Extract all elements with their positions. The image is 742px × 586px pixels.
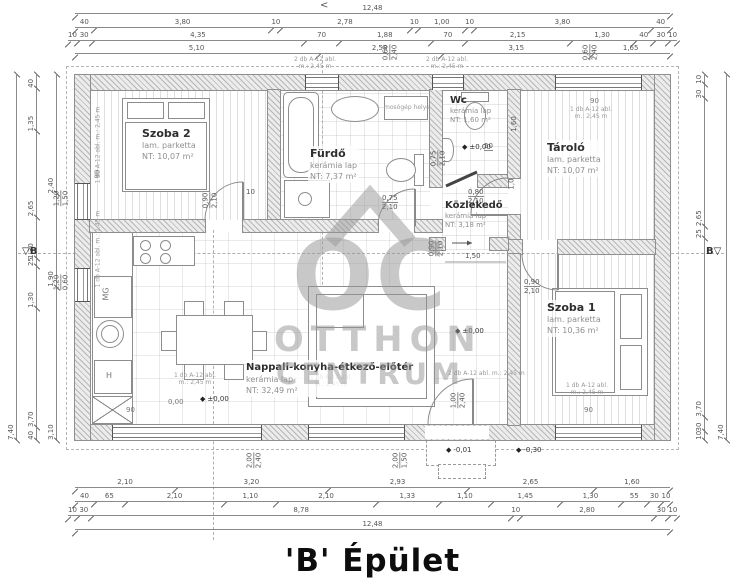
door-dim-furdo: 0,752,10	[382, 194, 398, 211]
window-dim-top-2: 0,602,40	[581, 45, 598, 61]
dim-right-chain: 10302,65253,703010	[692, 75, 704, 440]
dim-top-total: 12,48	[75, 2, 670, 14]
window-szoba1-bottom	[555, 425, 642, 440]
wall-exterior-right	[655, 75, 670, 440]
note-kitchen-window: 1 db A-12 abl. m.: 1,45 m	[95, 224, 102, 288]
wall-h1-a	[90, 220, 205, 232]
window-nappali-bottom-small	[308, 425, 405, 440]
room-label-tarolo: Tároló lam. parketta NT: 10,07 m²	[545, 140, 603, 177]
room-label-wc: Wc kerámia lap NT: 1,60 m²	[448, 93, 493, 126]
dim-right-total: 7,40	[714, 75, 726, 440]
washer-note: mosógép helye	[384, 104, 428, 111]
dim-leader-arrow: <	[320, 0, 328, 11]
window-dim-top-1: 0,602,40	[381, 45, 398, 61]
window-tarolo-top	[555, 75, 642, 90]
dim-kozlekedo-150: 1,50	[465, 252, 481, 260]
dim-bottom-row2: 40652,101,102,101,331,101,451,30553010	[75, 490, 670, 502]
wall-exterior-left	[75, 75, 90, 440]
window-nappali-bottom-large	[112, 425, 262, 440]
dim-szoba2-10: 10	[246, 188, 255, 196]
wall-nappali-szoba1	[508, 254, 520, 425]
floor-nappali-hall	[430, 250, 508, 425]
wall-h1-c	[415, 220, 442, 232]
level-marker-nappali-right: ±0,00	[455, 327, 484, 335]
room-label-nappali: Nappali-konyha-étkező-előtér kerámia lap…	[244, 360, 415, 397]
door-dim-szoba1: 0,902,10	[524, 278, 540, 295]
window-furdo-top	[305, 75, 339, 90]
stove	[133, 236, 195, 266]
level-zero-plain: 0,00	[168, 398, 184, 406]
wall-wc-bottom	[478, 175, 508, 187]
window-dim-bottom-small: 2,001,50	[391, 453, 408, 469]
burner	[160, 253, 171, 264]
dining-table	[176, 315, 253, 365]
dim-bottom-total: 12,48	[75, 518, 670, 530]
chair	[161, 331, 177, 351]
wall-furdo-wc	[430, 90, 442, 187]
washbasin	[331, 96, 379, 122]
door-dim-szoba2: 0,902,10	[201, 193, 218, 209]
door-dim-entry: 1,002,40	[449, 393, 466, 409]
dim-top-row3: 10304,35701,88702,151,30403010	[68, 29, 677, 41]
note-tarolo-window: 1 db A-12 abl.m.: 2,45 m	[556, 106, 626, 120]
room-label-szoba2: Szoba 2 lam. parketta NT: 10,07 m²	[140, 126, 198, 163]
burner	[140, 240, 151, 251]
kitchen-sink-inner	[101, 325, 119, 343]
wall-h4-b	[490, 238, 508, 250]
section-marker-right: B▽	[706, 246, 721, 257]
wall-szoba2-furdo	[268, 90, 280, 222]
wall-wc-tarolo	[508, 90, 520, 178]
level-marker-nappali-left: ±0,00	[200, 395, 229, 403]
shower-drain	[298, 192, 312, 206]
dim-top-row2: 403,80102,78101,00103,8040	[75, 16, 670, 28]
room-label-kozlekedo: Közlekedő kerámia lap NT: 3,18 m²	[443, 198, 505, 231]
dim-left-mid: 401,352,651,30251,303,7040	[24, 75, 36, 440]
window-dim-left-lower: 1,200,60	[52, 275, 69, 291]
dishwasher-label: MG	[103, 287, 111, 300]
wall-h3-b	[558, 240, 655, 254]
level-marker-entry: -0,01	[446, 446, 472, 454]
pillow	[620, 345, 642, 390]
burner	[160, 240, 171, 251]
pillow	[127, 102, 164, 119]
room-label-szoba1: Szoba 1 lam. parketta NT: 10,36 m²	[545, 300, 603, 337]
fridge-label: H	[106, 372, 112, 380]
chair	[251, 331, 267, 351]
note-entry-window: 2 db A-12 abl. m.: 2,45 m	[448, 370, 512, 377]
door-dim-kozlekedo: 0,902,10	[427, 241, 444, 257]
note-top-window-1: 2 db A-12 abl.m.: 2,45 m	[280, 56, 350, 70]
door-dim-wc: 0,752,10	[429, 151, 446, 167]
sill-szoba1: 90	[584, 406, 593, 414]
dim-left-total: 7,40	[4, 75, 16, 440]
wall-h1-b	[243, 220, 378, 232]
floorplan-canvas: mosógép helye MG H	[0, 0, 742, 586]
note-top-window-2: 2 db A-12 abl.m.: 2,45 m	[412, 56, 482, 70]
pillow	[620, 294, 642, 339]
plan-title: 'B' Épület	[75, 543, 670, 579]
dim-bottom-row1: 2,103,202,932,651,60	[75, 476, 670, 488]
toilet-bowl-furdo	[386, 158, 416, 182]
room-label-furdo: Fürdő kerámia lap NT: 7,37 m²	[308, 146, 359, 183]
window-szoba2-left	[75, 183, 90, 220]
sill-nappali: 90	[126, 406, 135, 414]
entry-door-opening	[425, 426, 489, 439]
note-szoba1-window: 1 db A-12 abl.m.: 2,45 m	[552, 382, 622, 396]
note-nappali-window-1: 1 db A-12 abl.m.: 2,45 m	[160, 372, 230, 386]
dim-bottom-row3: 10308,78102,803010	[68, 504, 677, 516]
window-kitchen-left	[75, 268, 90, 302]
coffee-table	[316, 294, 364, 328]
dim-tarolo-160: 1,60	[510, 116, 518, 132]
section-marker-left: ▽B	[22, 246, 37, 257]
pillow	[168, 102, 205, 119]
dim-left-inner: 2,401,903,10	[44, 75, 56, 440]
dim-tarolo-100: 1,0	[508, 178, 516, 189]
fridge	[94, 360, 132, 394]
sill-szoba2: 90	[93, 170, 101, 179]
level-marker-tarolo: ±0,00	[462, 143, 491, 151]
window-wc-top	[432, 75, 464, 90]
window-dim-bottom-large: 2,002,40	[245, 453, 262, 469]
wall-h3-a	[508, 240, 522, 254]
sill-tarolo: 90	[590, 97, 599, 105]
burner	[140, 253, 151, 264]
level-marker-terrace: -0,30	[516, 446, 542, 454]
window-dim-left-upper: 1,201,50	[52, 191, 69, 207]
